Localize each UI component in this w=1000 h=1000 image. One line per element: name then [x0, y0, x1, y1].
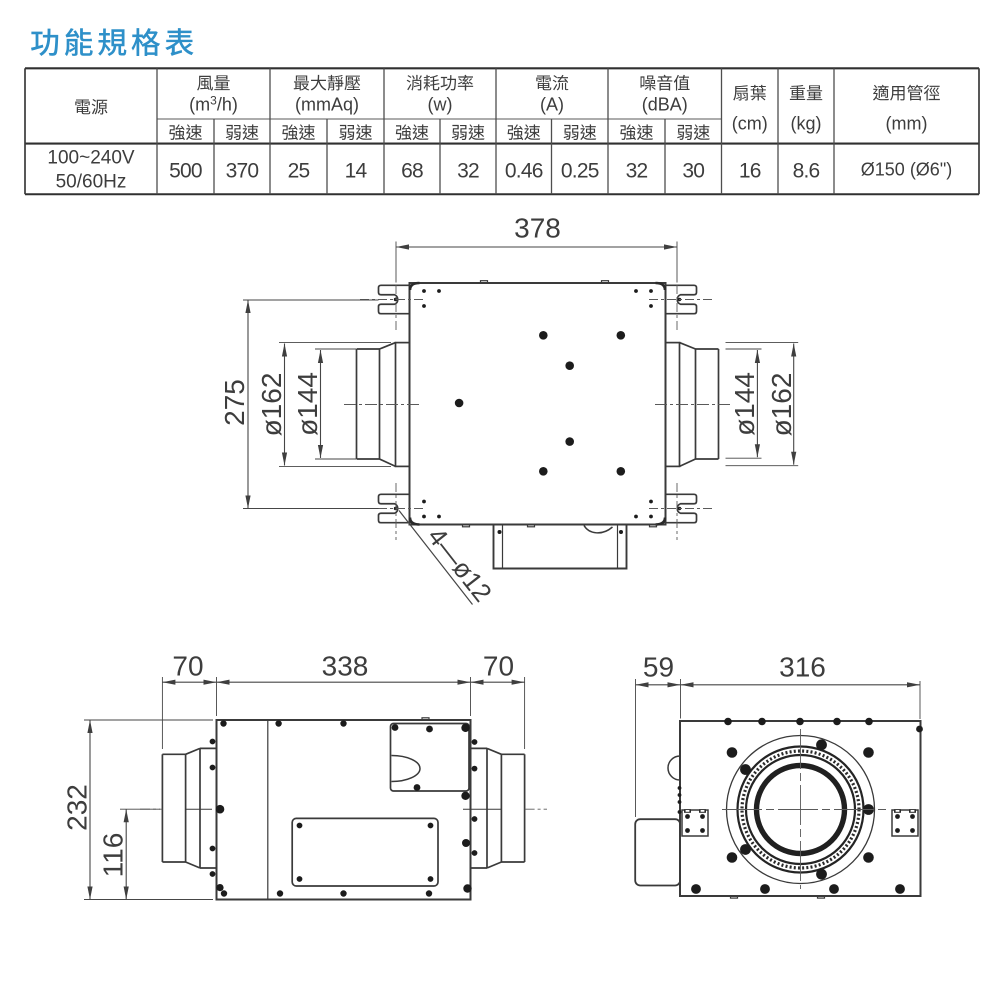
svg-text:Ø150 (Ø6"): Ø150 (Ø6") — [861, 160, 952, 180]
svg-text:(A): (A) — [540, 95, 564, 115]
svg-text:30: 30 — [682, 160, 704, 183]
svg-text:(kg): (kg) — [791, 114, 822, 134]
svg-text:232: 232 — [62, 784, 93, 831]
svg-text:ø162: ø162 — [766, 373, 797, 437]
svg-text:70: 70 — [172, 651, 203, 682]
svg-text:100~240V: 100~240V — [47, 148, 134, 169]
svg-text:(m3/h): (m3/h) — [189, 94, 238, 115]
svg-text:ø162: ø162 — [256, 373, 287, 437]
svg-text:116: 116 — [97, 833, 128, 878]
svg-text:70: 70 — [483, 651, 514, 682]
svg-text:0.25: 0.25 — [561, 160, 599, 183]
svg-text:370: 370 — [226, 160, 259, 183]
svg-text:(mmAq): (mmAq) — [295, 95, 359, 115]
svg-text:25: 25 — [288, 160, 310, 183]
svg-text:378: 378 — [514, 213, 561, 244]
svg-text:(mm): (mm) — [886, 114, 928, 134]
svg-text:14: 14 — [345, 160, 368, 183]
svg-text:(dBA): (dBA) — [642, 95, 688, 115]
svg-text:16: 16 — [739, 160, 761, 183]
svg-text:32: 32 — [457, 160, 479, 183]
svg-text:(cm): (cm) — [732, 114, 768, 134]
svg-text:316: 316 — [779, 652, 826, 683]
svg-text:ø144: ø144 — [292, 372, 323, 436]
svg-text:68: 68 — [401, 160, 423, 183]
svg-text:ø144: ø144 — [729, 372, 760, 436]
svg-text:275: 275 — [219, 379, 250, 426]
svg-text:338: 338 — [322, 651, 369, 682]
svg-text:0.46: 0.46 — [505, 160, 543, 183]
svg-text:50/60Hz: 50/60Hz — [56, 172, 127, 193]
svg-text:500: 500 — [169, 160, 202, 183]
svg-text:4—ø12: 4—ø12 — [422, 522, 498, 608]
svg-text:32: 32 — [626, 160, 648, 183]
svg-text:(w): (w) — [428, 95, 453, 115]
svg-text:59: 59 — [643, 652, 674, 683]
svg-text:8.6: 8.6 — [793, 160, 820, 183]
